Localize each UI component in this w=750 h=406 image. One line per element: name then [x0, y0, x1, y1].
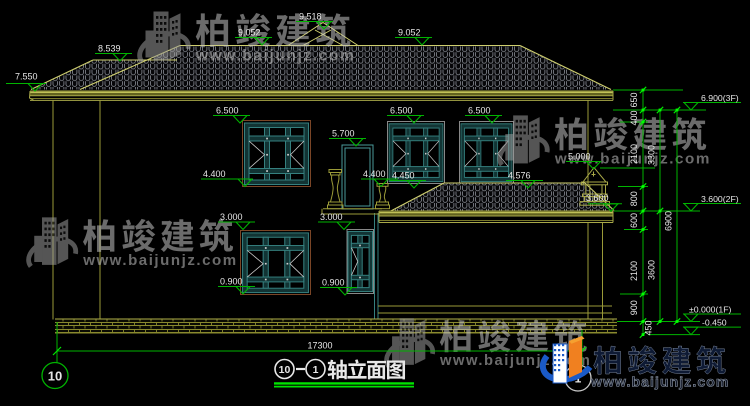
svg-text:7.550: 7.550	[15, 72, 38, 82]
svg-text:9.052: 9.052	[398, 28, 421, 38]
svg-text:1: 1	[313, 364, 319, 376]
svg-text:4.450: 4.450	[392, 171, 415, 181]
svg-text:4.400: 4.400	[363, 169, 386, 179]
svg-text:2100: 2100	[629, 261, 639, 281]
svg-text:10: 10	[279, 364, 291, 376]
svg-text:3.000: 3.000	[220, 212, 243, 222]
svg-text:4.400: 4.400	[203, 169, 226, 179]
svg-text:-0.450: -0.450	[702, 318, 727, 328]
svg-text:400: 400	[629, 110, 639, 125]
svg-text:5.700: 5.700	[332, 129, 355, 139]
svg-text:6.500: 6.500	[390, 106, 413, 116]
svg-text:6.500: 6.500	[468, 106, 491, 116]
svg-text:3300: 3300	[647, 145, 657, 165]
svg-text:3.000: 3.000	[320, 212, 343, 222]
svg-text:www.baijunjz.com: www.baijunjz.com	[195, 48, 355, 65]
svg-text:2100: 2100	[629, 144, 639, 164]
svg-text:6900: 6900	[664, 211, 674, 231]
svg-text:17300: 17300	[307, 341, 332, 351]
svg-text:www.baijunjz.com: www.baijunjz.com	[82, 252, 237, 269]
svg-text:800: 800	[629, 191, 639, 206]
svg-text:0.900: 0.900	[220, 277, 243, 287]
svg-text:450: 450	[644, 320, 654, 335]
svg-text:6.900(3F): 6.900(3F)	[701, 93, 739, 103]
svg-text:10: 10	[48, 369, 62, 384]
svg-text:3.600: 3.600	[586, 193, 609, 203]
svg-text:8.539: 8.539	[98, 44, 121, 54]
svg-text:600: 600	[629, 213, 639, 228]
svg-text:www.baijunjz.com: www.baijunjz.com	[590, 374, 729, 390]
svg-text:650: 650	[629, 92, 639, 107]
svg-text:±0.000(1F): ±0.000(1F)	[689, 305, 732, 315]
svg-text:4.576: 4.576	[508, 171, 531, 181]
svg-text:www.baijunjz.com: www.baijunjz.com	[439, 353, 591, 369]
svg-text:6.500: 6.500	[216, 106, 239, 116]
svg-text:3.600(2F): 3.600(2F)	[701, 194, 739, 204]
svg-text:9.518: 9.518	[299, 12, 322, 22]
svg-text:3600: 3600	[647, 260, 657, 280]
svg-text:0.900: 0.900	[322, 278, 345, 288]
svg-text:9.052: 9.052	[238, 28, 261, 38]
svg-text:5.000: 5.000	[568, 152, 591, 162]
svg-text:900: 900	[629, 300, 639, 315]
